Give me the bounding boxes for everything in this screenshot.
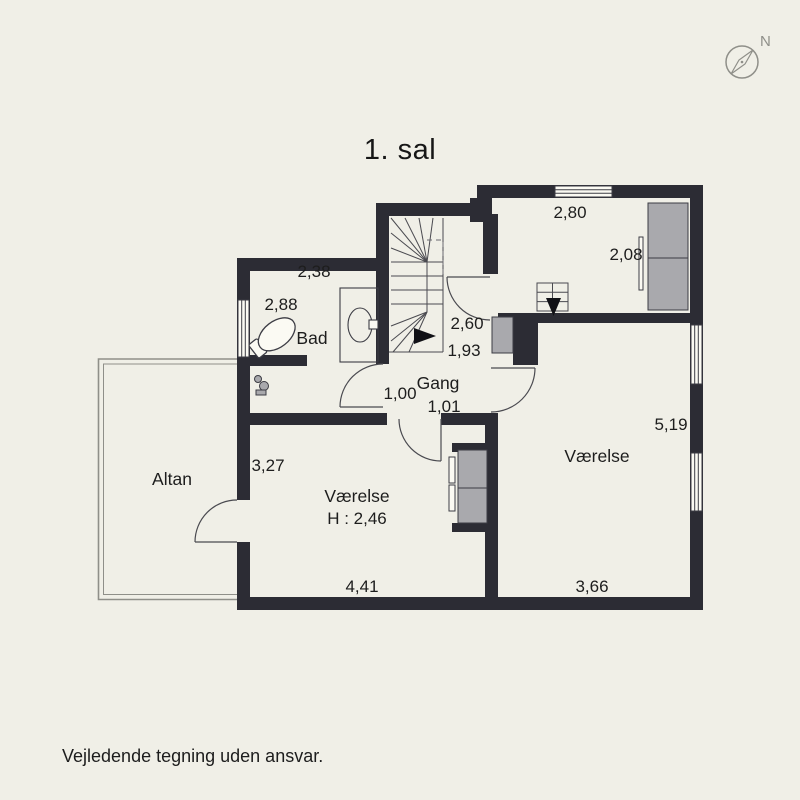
dim-bad-width: 2,38 (297, 262, 330, 281)
dim-bad-depth: 2,88 (264, 295, 297, 314)
dim-top-right-depth: 2,08 (609, 245, 642, 264)
sink-icon (340, 288, 378, 362)
dim-room-left-height: H : 2,46 (327, 509, 387, 528)
wall (690, 185, 703, 610)
wardrobe-top-right (639, 203, 688, 310)
dim-gang-a: 1,00 (383, 384, 416, 403)
compass: N (726, 33, 771, 78)
dim-room-right-depth: 5,19 (654, 415, 687, 434)
dim-room-right-width: 3,66 (575, 577, 608, 596)
wall (513, 313, 538, 365)
wardrobe-room-left (449, 450, 487, 523)
dim-top-right-width: 2,80 (553, 203, 586, 222)
window-right-lower (691, 453, 702, 511)
floorplan-canvas: 1. sal (0, 0, 800, 800)
window-left-bad (238, 300, 249, 357)
compass-north-label: N (760, 33, 771, 50)
dim-landing-a: 2,60 (450, 314, 483, 333)
window-top (555, 186, 612, 197)
wall (483, 214, 498, 274)
toilet-icon (246, 311, 301, 362)
wall (376, 203, 477, 216)
door-balcony (195, 500, 237, 542)
dim-room-left-depth: 3,27 (251, 456, 284, 475)
dim-landing-b: 1,93 (447, 341, 480, 360)
door-room-left (399, 419, 441, 461)
door-bad (340, 364, 383, 407)
door-opening (237, 500, 250, 542)
wall (237, 413, 387, 425)
room-label-altan: Altan (152, 469, 192, 489)
wall (452, 523, 487, 532)
window-right-upper (691, 325, 702, 384)
room-label-left: Værelse (324, 486, 389, 506)
cabinet-landing (492, 317, 513, 353)
dim-room-left-width: 4,41 (345, 577, 378, 596)
wall (237, 597, 703, 610)
disclaimer-note: Vejledende tegning uden ansvar. (62, 746, 323, 767)
shower-fixture-icon (255, 376, 269, 396)
stairs (389, 218, 443, 352)
stairs-direction-arrow (414, 328, 436, 344)
dim-gang-b: 1,01 (427, 397, 460, 416)
room-label-gang: Gang (417, 373, 460, 393)
room-label-bad: Bad (296, 328, 327, 348)
floorplan-drawing: N 2,80 2,08 2,38 2,88 Bad 2,60 1,93 Gang… (0, 0, 800, 800)
room-label-right: Værelse (564, 446, 629, 466)
door-room-right (491, 368, 535, 412)
loft-stairs-icon (537, 283, 568, 316)
